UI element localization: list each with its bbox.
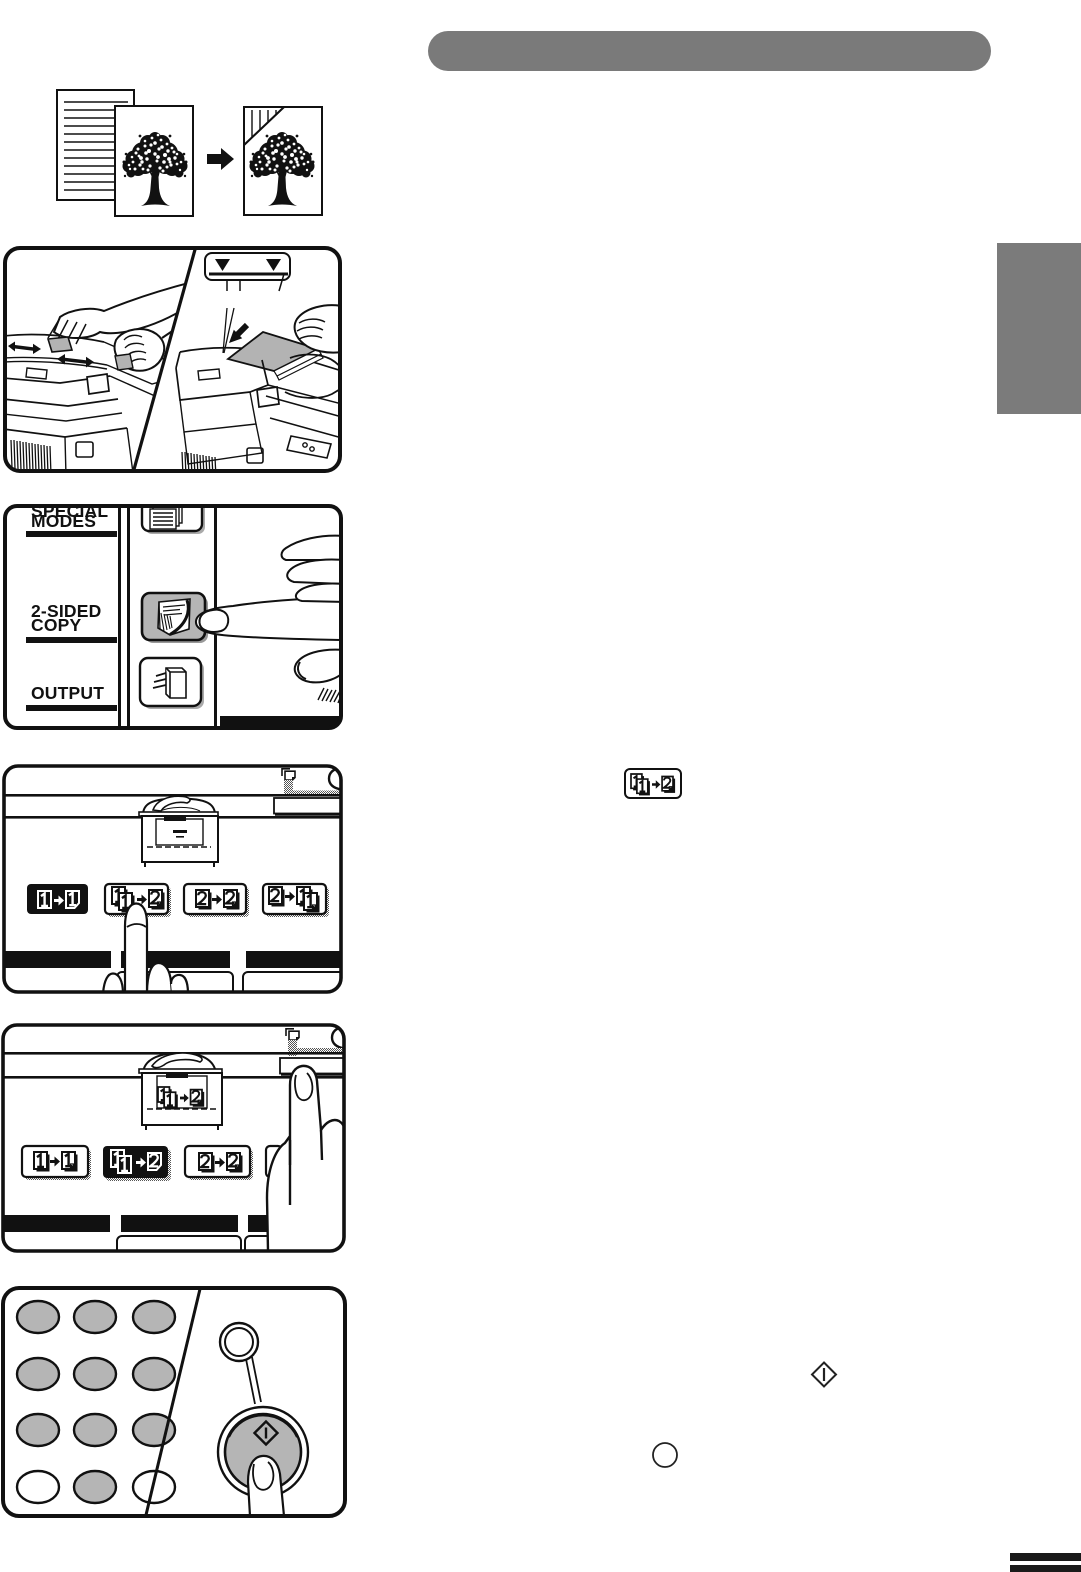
svg-text:MODES: MODES [31, 511, 96, 531]
svg-text:COPY: COPY [31, 615, 82, 635]
svg-text:OUTPUT: OUTPUT [31, 683, 104, 703]
